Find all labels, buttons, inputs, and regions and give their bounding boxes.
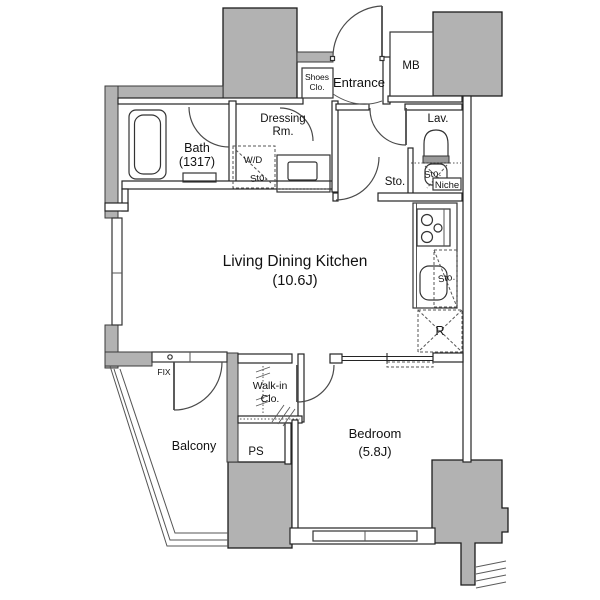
hall-door: [370, 108, 406, 145]
hall-storage-label: Sto.: [385, 176, 405, 188]
lav-label: Lav.: [428, 113, 449, 125]
ps-label: PS: [248, 446, 264, 458]
niche-label: Niche: [435, 180, 459, 191]
dressing-label-1: Dressing: [260, 113, 305, 125]
entrance-step-line: [333, 94, 382, 104]
bedroom-label: Bedroom: [349, 426, 402, 441]
stove: [417, 209, 450, 246]
floor-plan: Bath (1317) Dressing Rm. W/D Sto. Shoes …: [0, 0, 600, 600]
wall-right-outer: [463, 96, 471, 462]
bath-label: Bath: [184, 141, 210, 155]
bath-size: (1317): [179, 155, 215, 169]
ldk-door: [336, 157, 379, 200]
wall-entrance-top: [297, 52, 333, 62]
fix-window-label: FIX: [157, 367, 171, 377]
wd-storage-label: Sto.: [250, 172, 268, 185]
wall-balcony-right-post: [227, 353, 238, 462]
walkin-label-1: Walk-in: [253, 380, 288, 392]
ldk-side-window: [112, 218, 122, 325]
balcony-label: Balcony: [172, 439, 217, 453]
kitchen-storage-label: Sto.: [437, 272, 456, 286]
shoes-label-1: Shoes: [305, 72, 329, 82]
column-top-right: [433, 12, 502, 96]
wall-balcony-left: [105, 352, 152, 366]
sliding-partition: [342, 353, 433, 367]
refrigerator-label: R: [435, 324, 444, 338]
floor-plan-drawing: Bath (1317) Dressing Rm. W/D Sto. Shoes …: [0, 0, 600, 600]
column-bottom-center: [228, 462, 292, 548]
mb-label: MB: [402, 60, 420, 72]
wall-left-upper: [105, 86, 118, 218]
walkin-label-2: Clo.: [261, 393, 280, 405]
ground-hatch: [476, 561, 506, 588]
bedroom-size: (5.8J): [358, 444, 391, 459]
labels: Bath (1317) Dressing Rm. W/D Sto. Shoes …: [157, 60, 459, 459]
column-top-left: [223, 8, 297, 100]
entrance-label: Entrance: [333, 75, 385, 90]
balcony-door: [174, 362, 222, 410]
entrance-door: [331, 6, 385, 61]
kitchen-counter: [413, 203, 457, 308]
shoes-label-2: Clo.: [309, 82, 324, 92]
column-bottom-right: [432, 460, 508, 585]
wd-label: W/D: [244, 155, 263, 166]
dressing-label-2: Rm.: [272, 126, 293, 138]
ldk-label: Living Dining Kitchen: [223, 253, 368, 270]
ldk-size: (10.6J): [272, 273, 317, 289]
